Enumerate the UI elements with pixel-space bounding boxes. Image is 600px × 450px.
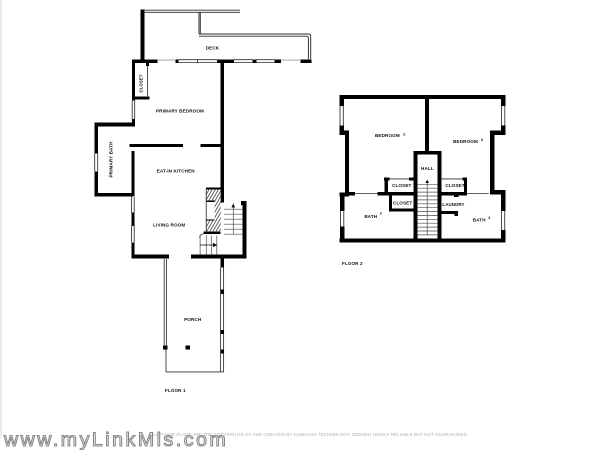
svg-text:BEDROOM: BEDROOM <box>375 133 400 138</box>
svg-text:EAT-IN KITCHEN: EAT-IN KITCHEN <box>157 169 196 174</box>
svg-text:DECK: DECK <box>206 45 220 50</box>
svg-text:PRIMARY BATH: PRIMARY BATH <box>109 141 114 178</box>
svg-text:LAUNDRY: LAUNDRY <box>442 202 464 207</box>
svg-text:CLOSET: CLOSET <box>392 183 411 188</box>
svg-text:www.myLinkMls.com: www.myLinkMls.com <box>3 429 228 450</box>
svg-text:LIVING ROOM: LIVING ROOM <box>153 222 185 227</box>
svg-text:CLOSET: CLOSET <box>445 183 464 188</box>
svg-text:FLOOR 1: FLOOR 1 <box>165 388 186 393</box>
svg-text:BEDROOM: BEDROOM <box>453 139 478 144</box>
svg-text:HALL: HALL <box>421 166 434 171</box>
svg-text:CLOSET: CLOSET <box>393 201 412 206</box>
svg-text:BATH: BATH <box>364 214 377 219</box>
svg-text:BATH: BATH <box>473 217 486 222</box>
svg-text:CLOSET: CLOSET <box>138 74 143 92</box>
svg-text:PRIMARY BEDROOM: PRIMARY BEDROOM <box>156 109 204 114</box>
svg-text:FLOOR 2: FLOOR 2 <box>342 261 363 266</box>
svg-text:PORCH: PORCH <box>184 317 202 322</box>
